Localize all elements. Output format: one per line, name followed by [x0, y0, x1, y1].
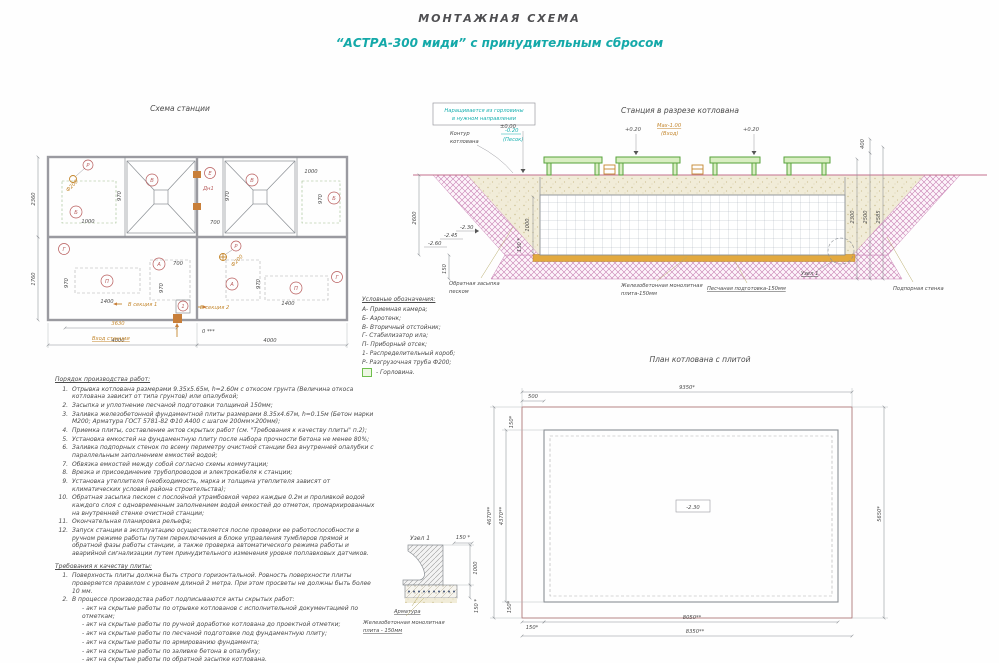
svg-text:(Песок): (Песок) — [503, 137, 523, 143]
svg-text:+0.20: +0.20 — [625, 127, 642, 133]
svg-text:700: 700 — [210, 220, 221, 226]
svg-text:песком: песком — [449, 289, 469, 295]
svg-text:970: 970 — [318, 193, 324, 204]
svg-text:1000: 1000 — [304, 169, 318, 175]
section-view-drawing: Станция в разрезе котлована — [405, 95, 995, 325]
work-order-item: Обвязка емкостей между собой согласно сх… — [70, 461, 379, 469]
work-order-item: Установка емкостей на фундаментную плиту… — [70, 436, 379, 444]
station-lids — [544, 157, 830, 175]
svg-text:Обратная засыпка: Обратная засыпка — [449, 281, 500, 287]
act-item: - акт на скрытые работы по армированию ф… — [80, 639, 379, 647]
svg-text:5650*: 5650* — [877, 506, 883, 522]
svg-text:-2.45: -2.45 — [444, 233, 458, 239]
work-order-item: Заливка железобетонной фундаментной плит… — [70, 411, 379, 426]
svg-text:+0.20: +0.20 — [743, 127, 760, 133]
svg-text:8050**: 8050** — [683, 615, 702, 621]
act-item: - акт на скрытые работы по песчаной подг… — [80, 630, 379, 638]
node1-title: Узел 1 — [410, 535, 430, 542]
work-order-item: Отрывка котлована размерами 9.35х5.65м, … — [70, 386, 379, 401]
svg-text:970: 970 — [256, 278, 262, 289]
svg-text:Подпорная стенка: Подпорная стенка — [893, 286, 944, 292]
dashed-zone-3 — [150, 260, 190, 300]
plate-requirement-item: Поверхность плиты должна быть строго гор… — [70, 572, 379, 595]
svg-text:500: 500 — [528, 394, 539, 400]
svg-text:-2.60: -2.60 — [428, 241, 442, 247]
section-title: Станция в разрезе котлована — [621, 106, 739, 115]
pit-plan-title: План котлована с плитой — [650, 355, 751, 364]
svg-text:150 *: 150 * — [456, 535, 471, 541]
node1-geometry — [403, 545, 457, 603]
svg-text:4670**: 4670** — [487, 506, 493, 525]
plate-requirements-list: Поверхность плиты должна быть строго гор… — [55, 572, 379, 663]
page-title: МОНТАЖНАЯ СХЕМА — [0, 12, 999, 25]
svg-text:плита-150мм: плита-150мм — [621, 291, 657, 297]
pit-bottom-elevation: -2.30 — [686, 505, 700, 511]
svg-text:970: 970 — [64, 277, 70, 288]
svg-text:П: П — [105, 279, 109, 285]
svg-text:±0.00: ±0.00 — [500, 124, 517, 130]
work-order-title: Порядок производства работ: — [55, 376, 379, 384]
extension-note: Наращивается из горловины в нужном напра… — [433, 103, 535, 125]
svg-text:в нужном направлении: в нужном направлении — [452, 116, 517, 122]
svg-text:1400: 1400 — [281, 301, 295, 307]
svg-text:А: А — [156, 262, 161, 268]
pit-plan-drawing: План котлована с плитой -2.30 9350* 500 … — [480, 348, 920, 663]
act-item: - акт на скрытые работы по заливке бетон… — [80, 648, 379, 656]
legend-item: А- Приемная камера; — [362, 306, 532, 315]
work-order-item: Врезка и присоединение трубопроводов и э… — [70, 469, 379, 477]
svg-text:В секция 1: В секция 1 — [128, 302, 157, 308]
svg-text:Б: Б — [332, 196, 336, 202]
svg-text:Мах-1.00: Мах-1.00 — [657, 123, 682, 129]
svg-text:0 ***: 0 *** — [202, 329, 215, 335]
svg-text:4000: 4000 — [263, 338, 277, 344]
work-order-list: Отрывка котлована размерами 9.35х5.65м, … — [55, 386, 379, 558]
svg-text:3630: 3630 — [111, 321, 125, 327]
svg-text:9350*: 9350* — [679, 385, 695, 391]
svg-text:4370**: 4370** — [499, 506, 505, 525]
plate-requirements-title: Требования к качеству плиты: — [55, 563, 379, 571]
plate-requirement-item: В процессе производства работ подписываю… — [70, 596, 379, 663]
svg-text:-2.30: -2.30 — [460, 225, 474, 231]
pit-plan-rects: -2.30 — [522, 407, 852, 618]
dn1-label: Дн1 — [202, 186, 214, 192]
svg-text:П: П — [294, 286, 298, 292]
svg-text:Песчаная подготовка-150мм: Песчаная подготовка-150мм — [707, 286, 786, 292]
svg-text:700: 700 — [173, 261, 184, 267]
svg-text:1760: 1760 — [31, 272, 37, 286]
svg-text:котлована: котлована — [450, 139, 479, 145]
svg-text:8350**: 8350** — [686, 629, 705, 635]
distribution-box-side — [604, 165, 615, 174]
work-order-item: Обратная засыпка песком с послойной утра… — [70, 494, 379, 517]
svg-text:Узел 1: Узел 1 — [801, 271, 818, 277]
svg-text:150*: 150* — [526, 625, 539, 631]
svg-text:1: 1 — [181, 304, 184, 310]
work-order-item: Заливка подпорных стенок по всему периме… — [70, 444, 379, 459]
svg-text:970: 970 — [159, 282, 165, 293]
svg-text:В: В — [250, 178, 254, 184]
svg-text:Б: Б — [74, 210, 78, 216]
aeration-tank-1 — [127, 161, 195, 233]
act-item: - акт на скрытые работы по обратной засы… — [80, 656, 379, 663]
svg-text:Железобетонная монолитная: Железобетонная монолитная — [620, 283, 703, 289]
phi200-label-2: Ф200 — [230, 254, 245, 269]
svg-text:150*: 150* — [507, 600, 513, 613]
svg-text:В: В — [150, 178, 154, 184]
svg-text:Контур: Контур — [450, 131, 470, 137]
svg-text:1000: 1000 — [525, 218, 531, 232]
page-subtitle: “АСТРА-300 миди” с принудительным сбросо… — [0, 36, 999, 50]
act-item: - акт на скрытые работы по отрывке котло… — [80, 605, 379, 620]
discharge-pipe-target-2 — [219, 250, 232, 261]
svg-text:2600: 2600 — [412, 211, 418, 225]
svg-text:А: А — [229, 282, 234, 288]
pit-contour-label: Контур котлована -0.20 (Песок) — [450, 128, 523, 173]
svg-text:150*: 150* — [509, 415, 515, 428]
chamber-labels: Р Б В Е Дн1 В Б Г А П 1 Р А П Г — [59, 160, 343, 311]
legend-title: Условные обозначения: — [362, 296, 532, 305]
drawing-sheet: МОНТАЖНАЯ СХЕМА “АСТРА-300 миди” с прину… — [0, 0, 999, 663]
acts-list: - акт на скрытые работы по отрывке котло… — [72, 605, 379, 663]
work-order-item: Установка утеплителя (необходимость, мар… — [70, 478, 379, 493]
aeration-tank-2 — [225, 161, 295, 233]
station-plan-drawing: Схема станции — [30, 95, 375, 360]
svg-text:Арматура: Арматура — [393, 609, 421, 615]
svg-text:2300: 2300 — [850, 210, 856, 224]
svg-text:1400: 1400 — [100, 299, 114, 305]
svg-text:Е: Е — [208, 171, 212, 177]
legend-item: Б- Аэротенк; — [362, 315, 532, 324]
svg-text:Р: Р — [234, 244, 238, 250]
construction-notes: Порядок производства работ: Отрывка котл… — [55, 376, 379, 663]
work-order-item: Окончательная планировка рельефа; — [70, 518, 379, 526]
svg-text:Р: Р — [86, 163, 90, 169]
svg-text:400: 400 — [860, 138, 866, 149]
station-plan-title: Схема станции — [150, 104, 210, 113]
svg-text:Г: Г — [63, 247, 67, 253]
svg-text:(Вход): (Вход) — [661, 131, 678, 137]
work-order-item: Запуск станции в эксплуатацию осуществля… — [70, 527, 379, 558]
svg-text:1000: 1000 — [81, 219, 95, 225]
svg-text:970: 970 — [117, 190, 123, 201]
svg-text:150 *: 150 * — [517, 238, 523, 253]
svg-text:150 *: 150 * — [474, 599, 480, 614]
svg-text:Наращивается из горловины: Наращивается из горловины — [444, 108, 523, 114]
legend-item: Г- Стабилизатор ила; — [362, 332, 532, 341]
act-item: - акт на скрытые работы по ручной дорабо… — [80, 621, 379, 629]
svg-text:2360: 2360 — [31, 192, 37, 206]
svg-text:2585: 2585 — [876, 210, 882, 224]
svg-text:Г: Г — [336, 275, 340, 281]
svg-text:Вход станции: Вход станции — [92, 336, 130, 342]
work-order-item: Засыпка и уплотнение песчаной подготовки… — [70, 402, 379, 410]
svg-text:150: 150 — [442, 263, 448, 274]
svg-text:2500: 2500 — [863, 210, 869, 224]
svg-text:1000: 1000 — [473, 561, 479, 575]
work-order-item: Приемка плиты, составление актов скрытых… — [70, 427, 379, 435]
legend-item: В- Вторичный отстойник; — [362, 324, 532, 333]
svg-text:970: 970 — [225, 190, 231, 201]
